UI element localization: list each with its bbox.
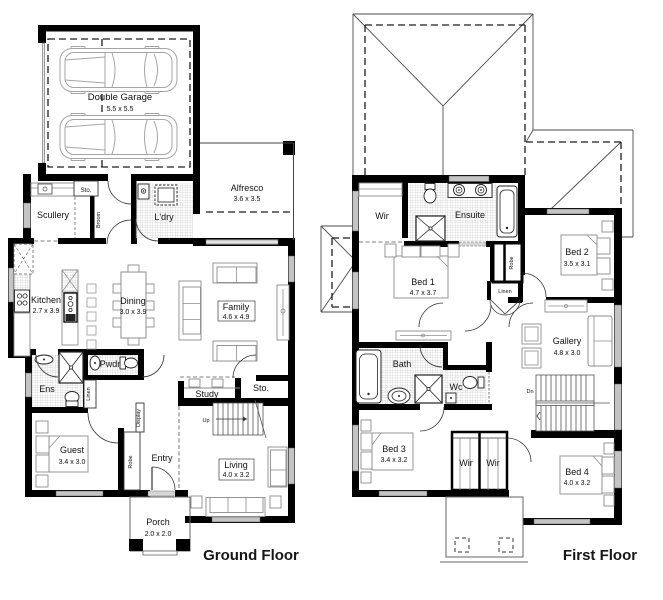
svg-text:Wc: Wc <box>450 382 463 392</box>
svg-text:Dn: Dn <box>526 389 533 395</box>
svg-text:Bath: Bath <box>393 359 412 369</box>
svg-text:Display: Display <box>136 409 142 427</box>
svg-text:Wir: Wir <box>486 458 500 468</box>
svg-text:First Floor: First Floor <box>563 547 637 564</box>
svg-text:Ensuite: Ensuite <box>455 210 485 220</box>
svg-text:3.4 x 3.0: 3.4 x 3.0 <box>59 459 86 466</box>
svg-text:Robe: Robe <box>128 455 134 468</box>
svg-text:Alfresco: Alfresco <box>231 183 264 193</box>
svg-text:3.6 x 3.5: 3.6 x 3.5 <box>234 196 261 203</box>
svg-text:Gallery: Gallery <box>553 336 582 346</box>
svg-text:4.0 x 3.2: 4.0 x 3.2 <box>223 472 250 479</box>
svg-text:Wir: Wir <box>375 211 389 221</box>
svg-text:Dining: Dining <box>120 296 146 306</box>
svg-text:Bed 1: Bed 1 <box>411 277 435 287</box>
svg-text:Robe: Robe <box>509 256 515 269</box>
svg-text:Ground Floor: Ground Floor <box>203 547 299 564</box>
svg-text:Sto.: Sto. <box>253 383 269 393</box>
svg-text:Ens: Ens <box>39 384 55 394</box>
svg-text:Family: Family <box>223 302 250 312</box>
svg-text:Bed 4: Bed 4 <box>565 467 589 477</box>
svg-text:Bed 3: Bed 3 <box>382 444 406 454</box>
svg-text:Scullery: Scullery <box>37 210 70 220</box>
svg-text:4.6 x 4.9: 4.6 x 4.9 <box>223 314 250 321</box>
svg-text:L'dry: L'dry <box>154 212 174 222</box>
svg-text:Porch: Porch <box>146 517 170 527</box>
svg-text:Linen: Linen <box>86 387 92 400</box>
svg-text:Up: Up <box>202 418 209 424</box>
svg-text:Living: Living <box>224 460 248 470</box>
svg-text:3.5 x 3.1: 3.5 x 3.1 <box>564 261 591 268</box>
svg-text:Wir: Wir <box>459 458 473 468</box>
svg-text:Sto.: Sto. <box>81 188 92 194</box>
svg-text:Linen: Linen <box>498 289 511 295</box>
svg-text:2.0 x 2.0: 2.0 x 2.0 <box>145 531 172 538</box>
svg-text:Double Garage: Double Garage <box>88 92 152 103</box>
svg-text:3.4 x 3.2: 3.4 x 3.2 <box>381 457 408 464</box>
svg-text:4.8 x 3.0: 4.8 x 3.0 <box>554 350 581 357</box>
svg-text:4.7 x 3.7: 4.7 x 3.7 <box>410 290 437 297</box>
svg-text:Entry: Entry <box>151 453 173 463</box>
svg-text:4.0 x 3.2: 4.0 x 3.2 <box>564 480 591 487</box>
svg-text:3.0 x 3.9: 3.0 x 3.9 <box>120 309 147 316</box>
svg-text:Broom: Broom <box>96 211 102 228</box>
svg-text:Study: Study <box>195 389 219 399</box>
svg-text:Bed 2: Bed 2 <box>565 247 589 257</box>
svg-text:5.5 x 5.5: 5.5 x 5.5 <box>107 106 134 113</box>
svg-text:2.7 x 3.9: 2.7 x 3.9 <box>33 308 60 315</box>
svg-text:Kitchen: Kitchen <box>31 295 61 305</box>
svg-text:Pwdr: Pwdr <box>100 359 121 369</box>
svg-text:Guest: Guest <box>60 445 85 455</box>
